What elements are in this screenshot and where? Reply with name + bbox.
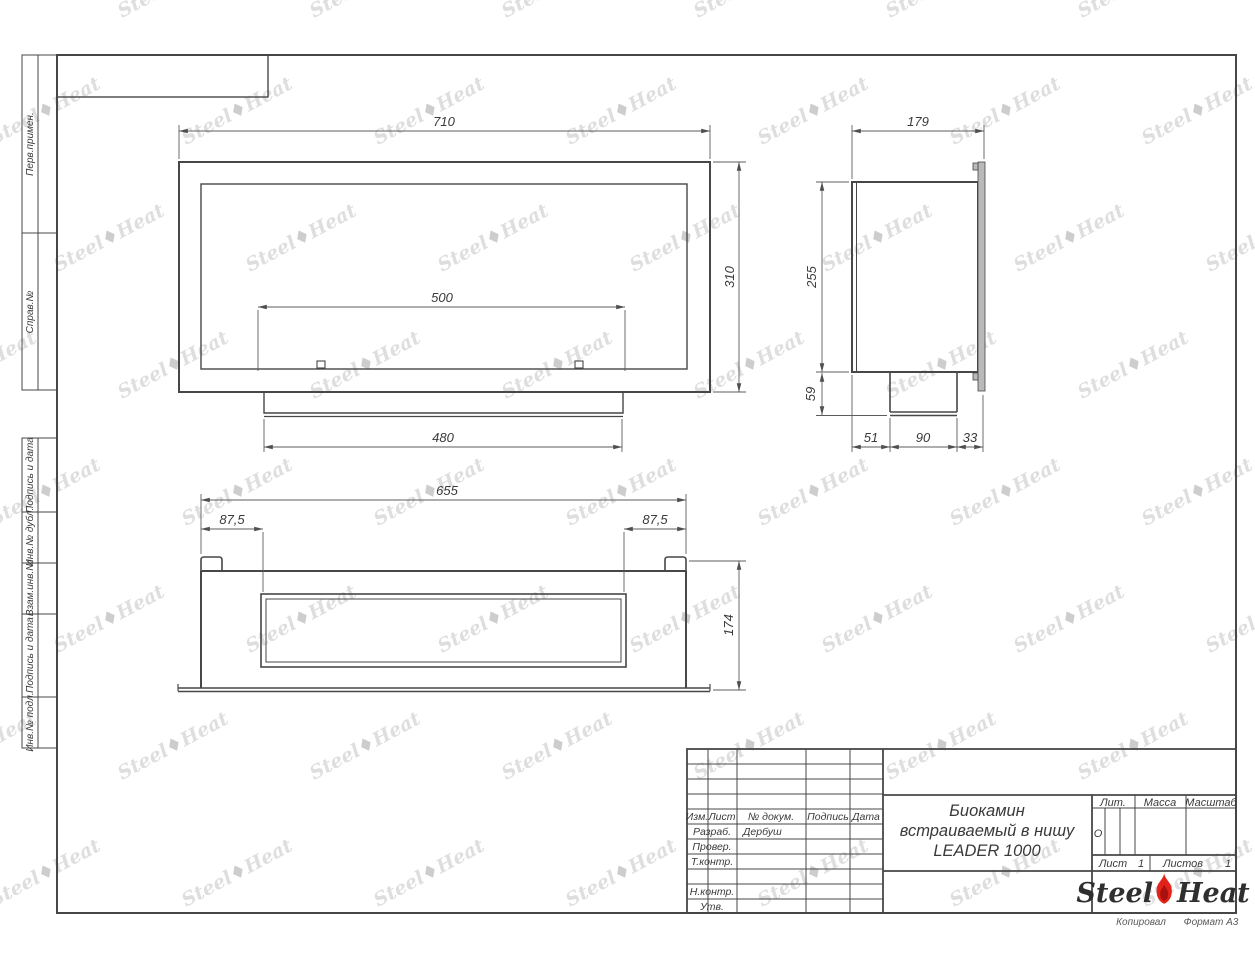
row-razrab-value: Дербуш — [742, 826, 782, 838]
watermark-text: Steel♦Heat — [0, 0, 40, 22]
steelheat-logo: Steel Heat — [1076, 874, 1250, 909]
steelheat-watermark-layer: Steel♦HeatSteel♦HeatSteel♦HeatSteel♦Heat… — [0, 0, 1255, 911]
dim-side-body-height: 255 — [804, 265, 819, 288]
watermark-text: Steel♦Heat — [946, 73, 1064, 150]
watermark-text: Steel♦Heat — [370, 73, 488, 150]
col-data: Дата — [851, 811, 880, 823]
watermark-text: Steel♦Heat — [882, 0, 1000, 22]
drawing-canvas: Steel♦HeatSteel♦HeatSteel♦HeatSteel♦Heat… — [0, 0, 1255, 970]
watermark-text: Steel♦Heat — [370, 835, 488, 912]
copied-note: Копировал — [1116, 917, 1166, 928]
watermark-text: Steel♦Heat — [1202, 200, 1255, 277]
bottom-tab-left — [201, 557, 222, 571]
doc-title-line1: Биокамин — [949, 802, 1025, 820]
dim-bottom-depth: 174 — [721, 614, 736, 636]
watermark-text: Steel♦Heat — [370, 454, 488, 531]
margin-label-vzam-inv: Взам.инв.№ — [25, 560, 36, 616]
watermark-text: Steel♦Heat — [1074, 708, 1192, 785]
left-margin-labels: Перв.примен. Справ.№ Подпись и дата Инв.… — [24, 112, 36, 751]
dim-bottom-width: 655 — [436, 483, 458, 498]
watermark-text: Steel♦Heat — [562, 835, 680, 912]
dim-bottom-offset-left: 87,5 — [219, 512, 245, 527]
watermark-text: Steel♦Heat — [562, 73, 680, 150]
sheets-value: 1 — [1225, 858, 1231, 870]
margin-label-perv-primen: Перв.примен. — [25, 112, 36, 176]
watermark-text: Steel♦Heat — [178, 835, 296, 912]
doc-title-line3: LEADER 1000 — [933, 842, 1041, 860]
watermark-text: Steel♦Heat — [754, 835, 872, 912]
watermark-text: Steel♦Heat — [1138, 73, 1255, 150]
watermark-text: Steel♦Heat — [50, 581, 168, 658]
watermark-text: Steel♦Heat — [946, 454, 1064, 531]
watermark-text: Steel♦Heat — [818, 581, 936, 658]
watermark-text: Steel♦Heat — [114, 0, 232, 22]
watermark-text: Steel♦Heat — [882, 708, 1000, 785]
watermark-text: Steel♦Heat — [1202, 581, 1255, 658]
watermark-text: Steel♦Heat — [1010, 200, 1128, 277]
format-note: Формат А3 — [1184, 917, 1239, 928]
lit-value: О — [1094, 828, 1103, 840]
dim-bottom-offset-right: 87,5 — [642, 512, 668, 527]
dim-front-tray: 480 — [432, 430, 454, 445]
dim-front-opening: 500 — [431, 290, 453, 305]
watermark-text: Steel♦Heat — [0, 835, 104, 912]
watermark-text: Steel♦Heat — [434, 581, 552, 658]
margin-label-podpis-data-2: Подпись и дата — [25, 617, 36, 693]
watermark-text: Steel♦Heat — [178, 73, 296, 150]
margin-label-inv-dubl: Инв.№ дубл. — [24, 508, 36, 567]
side-dimension-lines — [816, 125, 984, 452]
watermark-text: Steel♦Heat — [754, 454, 872, 531]
row-razrab-label: Разраб. — [693, 826, 731, 838]
title-block-header-row: Изм. Лист № докум. Подпись Дата — [686, 811, 880, 823]
watermark-text: Steel♦Heat — [242, 581, 360, 658]
row-tkontr-label: Т.контр. — [691, 856, 733, 868]
watermark-text: Steel♦Heat — [818, 200, 936, 277]
dim-front-width: 710 — [433, 114, 455, 129]
watermark-text: Steel♦Heat — [626, 200, 744, 277]
sheets-label: Листов — [1162, 858, 1203, 870]
col-podpis: Подпись — [807, 811, 849, 823]
watermark-text: Steel♦Heat — [1010, 581, 1128, 658]
margin-label-inv-podl: Инв.№ подл. — [25, 692, 36, 751]
watermark-text: Steel♦Heat — [434, 200, 552, 277]
front-view: 710 310 500 480 — [179, 114, 746, 452]
margin-label-podpis-data-1: Подпись и дата — [25, 437, 36, 513]
dim-front-height: 310 — [722, 265, 737, 287]
watermark-text: Steel♦Heat — [498, 708, 616, 785]
watermark-text: Steel♦Heat — [754, 73, 872, 150]
logo-steel-text: Steel — [1076, 878, 1153, 909]
bottom-view: 655 87,5 87,5 174 — [178, 483, 746, 692]
watermark-text: Steel♦Heat — [242, 200, 360, 277]
dim-side-seg3: 33 — [963, 430, 978, 445]
lit-label: Лит. — [1099, 797, 1126, 809]
row-nkontr-label: Н.контр. — [690, 886, 734, 898]
margin-label-sprav-no: Справ.№ — [25, 290, 36, 333]
watermark-text: Steel♦Heat — [1074, 327, 1192, 404]
front-burner-tab-left — [317, 361, 325, 368]
watermark-text: Steel♦Heat — [0, 454, 104, 531]
watermark-text: Steel♦Heat — [0, 327, 40, 404]
sheet-value: 1 — [1138, 858, 1144, 870]
watermark-text: Steel♦Heat — [498, 0, 616, 22]
dim-side-depth: 179 — [907, 114, 929, 129]
watermark-text: Steel♦Heat — [1138, 454, 1255, 531]
watermark-text: Steel♦Heat — [306, 708, 424, 785]
dim-side-seg2: 90 — [916, 430, 931, 445]
logo-heat-text: Heat — [1176, 878, 1250, 909]
row-utv-label: Утв. — [699, 901, 724, 913]
lit-mass-scale: Лит. Масса Масштаб О — [1094, 797, 1238, 840]
col-dokum: № докум. — [748, 811, 794, 823]
watermark-text: Steel♦Heat — [50, 200, 168, 277]
dim-side-seg1: 51 — [864, 430, 878, 445]
col-list: Лист — [707, 811, 735, 823]
sheet-label: Лист — [1098, 858, 1127, 870]
watermark-text: Steel♦Heat — [690, 0, 808, 22]
dim-side-tray-height: 59 — [803, 387, 818, 401]
drawing-sheet: Steel♦HeatSteel♦HeatSteel♦HeatSteel♦Heat… — [0, 0, 1255, 970]
front-outer-frame — [179, 162, 710, 392]
scale-label: Масштаб — [1185, 797, 1237, 809]
bottom-tab-right — [665, 557, 686, 571]
mass-label: Масса — [1144, 797, 1177, 809]
watermark-text: Steel♦Heat — [0, 73, 104, 150]
front-burner-tab-right — [575, 361, 583, 368]
watermark-text: Steel♦Heat — [114, 708, 232, 785]
col-izm: Изм. — [686, 811, 708, 823]
doc-title-line2: встраиваемый в нишу — [900, 822, 1076, 840]
watermark-text: Steel♦Heat — [1074, 0, 1192, 22]
row-prover-label: Провер. — [692, 841, 731, 853]
watermark-text: Steel♦Heat — [306, 0, 424, 22]
